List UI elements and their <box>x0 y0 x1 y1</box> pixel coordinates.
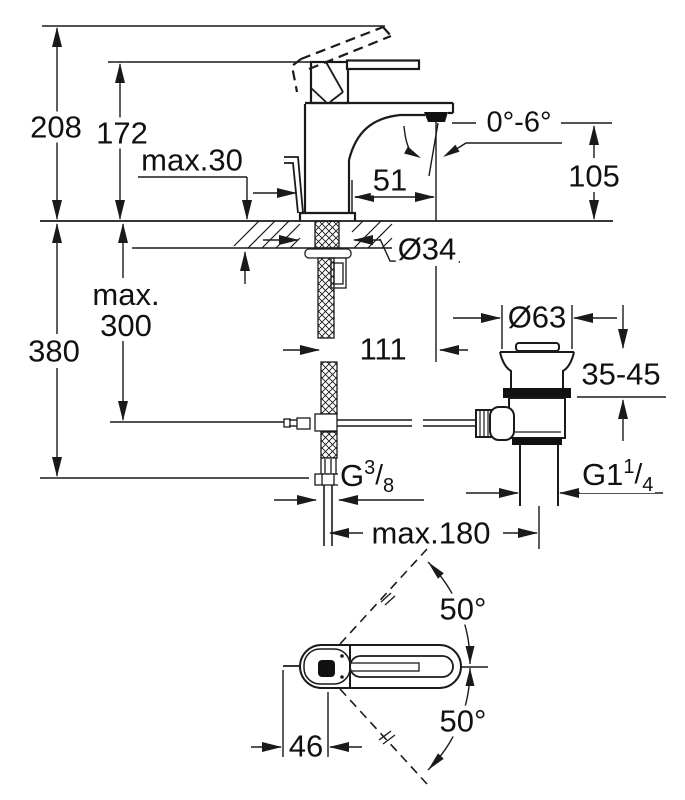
dim-deck-thickness: max.30 <box>139 145 245 176</box>
supply-thread-denominator: 8 <box>383 475 394 497</box>
dim-spout-reach: 51 <box>371 165 409 196</box>
waste-thread-numerator: 1 <box>623 456 634 478</box>
dim-overall-height: 208 <box>28 112 84 143</box>
waste-thread-denominator: 4 <box>642 474 653 496</box>
dim-hose-length: max. 300 <box>90 279 161 341</box>
supply-thread-g: G <box>340 458 364 493</box>
dim-spout-height: 105 <box>566 161 622 192</box>
supply-thread-numerator: 3 <box>364 457 375 479</box>
dim-handle-offset: 46 <box>287 731 325 762</box>
waste-thread-g: G1 <box>582 457 623 492</box>
counter-section <box>234 221 392 248</box>
faucet-technical-drawing: 208 172 max.30 51 0°-6° 105 Ø34 max. 300… <box>0 0 685 800</box>
pop-up-waste-assembly <box>476 343 574 506</box>
faucet-side-view <box>284 27 453 221</box>
dim-waste-thread: G11/4 <box>580 457 655 493</box>
dim-supply-thread: G3/8 <box>338 458 396 494</box>
dim-basin-thickness: 35-45 <box>579 359 662 390</box>
supply-thread-slash: / <box>375 459 383 490</box>
dim-hose-length-line1: max. <box>92 279 159 310</box>
dim-swivel-angle-upper: 50° <box>438 594 489 625</box>
dim-waste-flange-diameter: Ø63 <box>506 302 569 333</box>
dim-hole-diameter: Ø34 <box>396 234 459 265</box>
dim-hose-length-line2: 300 <box>92 310 159 341</box>
dim-stream-angle: 0°-6° <box>484 109 553 138</box>
dim-swivel-angle-lower: 50° <box>438 706 489 737</box>
dim-clearance-height: 380 <box>26 336 82 367</box>
dim-center-to-stream: 111 <box>357 334 408 365</box>
dim-max-distance: max.180 <box>370 518 493 549</box>
faucet-top-view <box>300 549 475 784</box>
supply-hose-assembly <box>284 221 477 546</box>
